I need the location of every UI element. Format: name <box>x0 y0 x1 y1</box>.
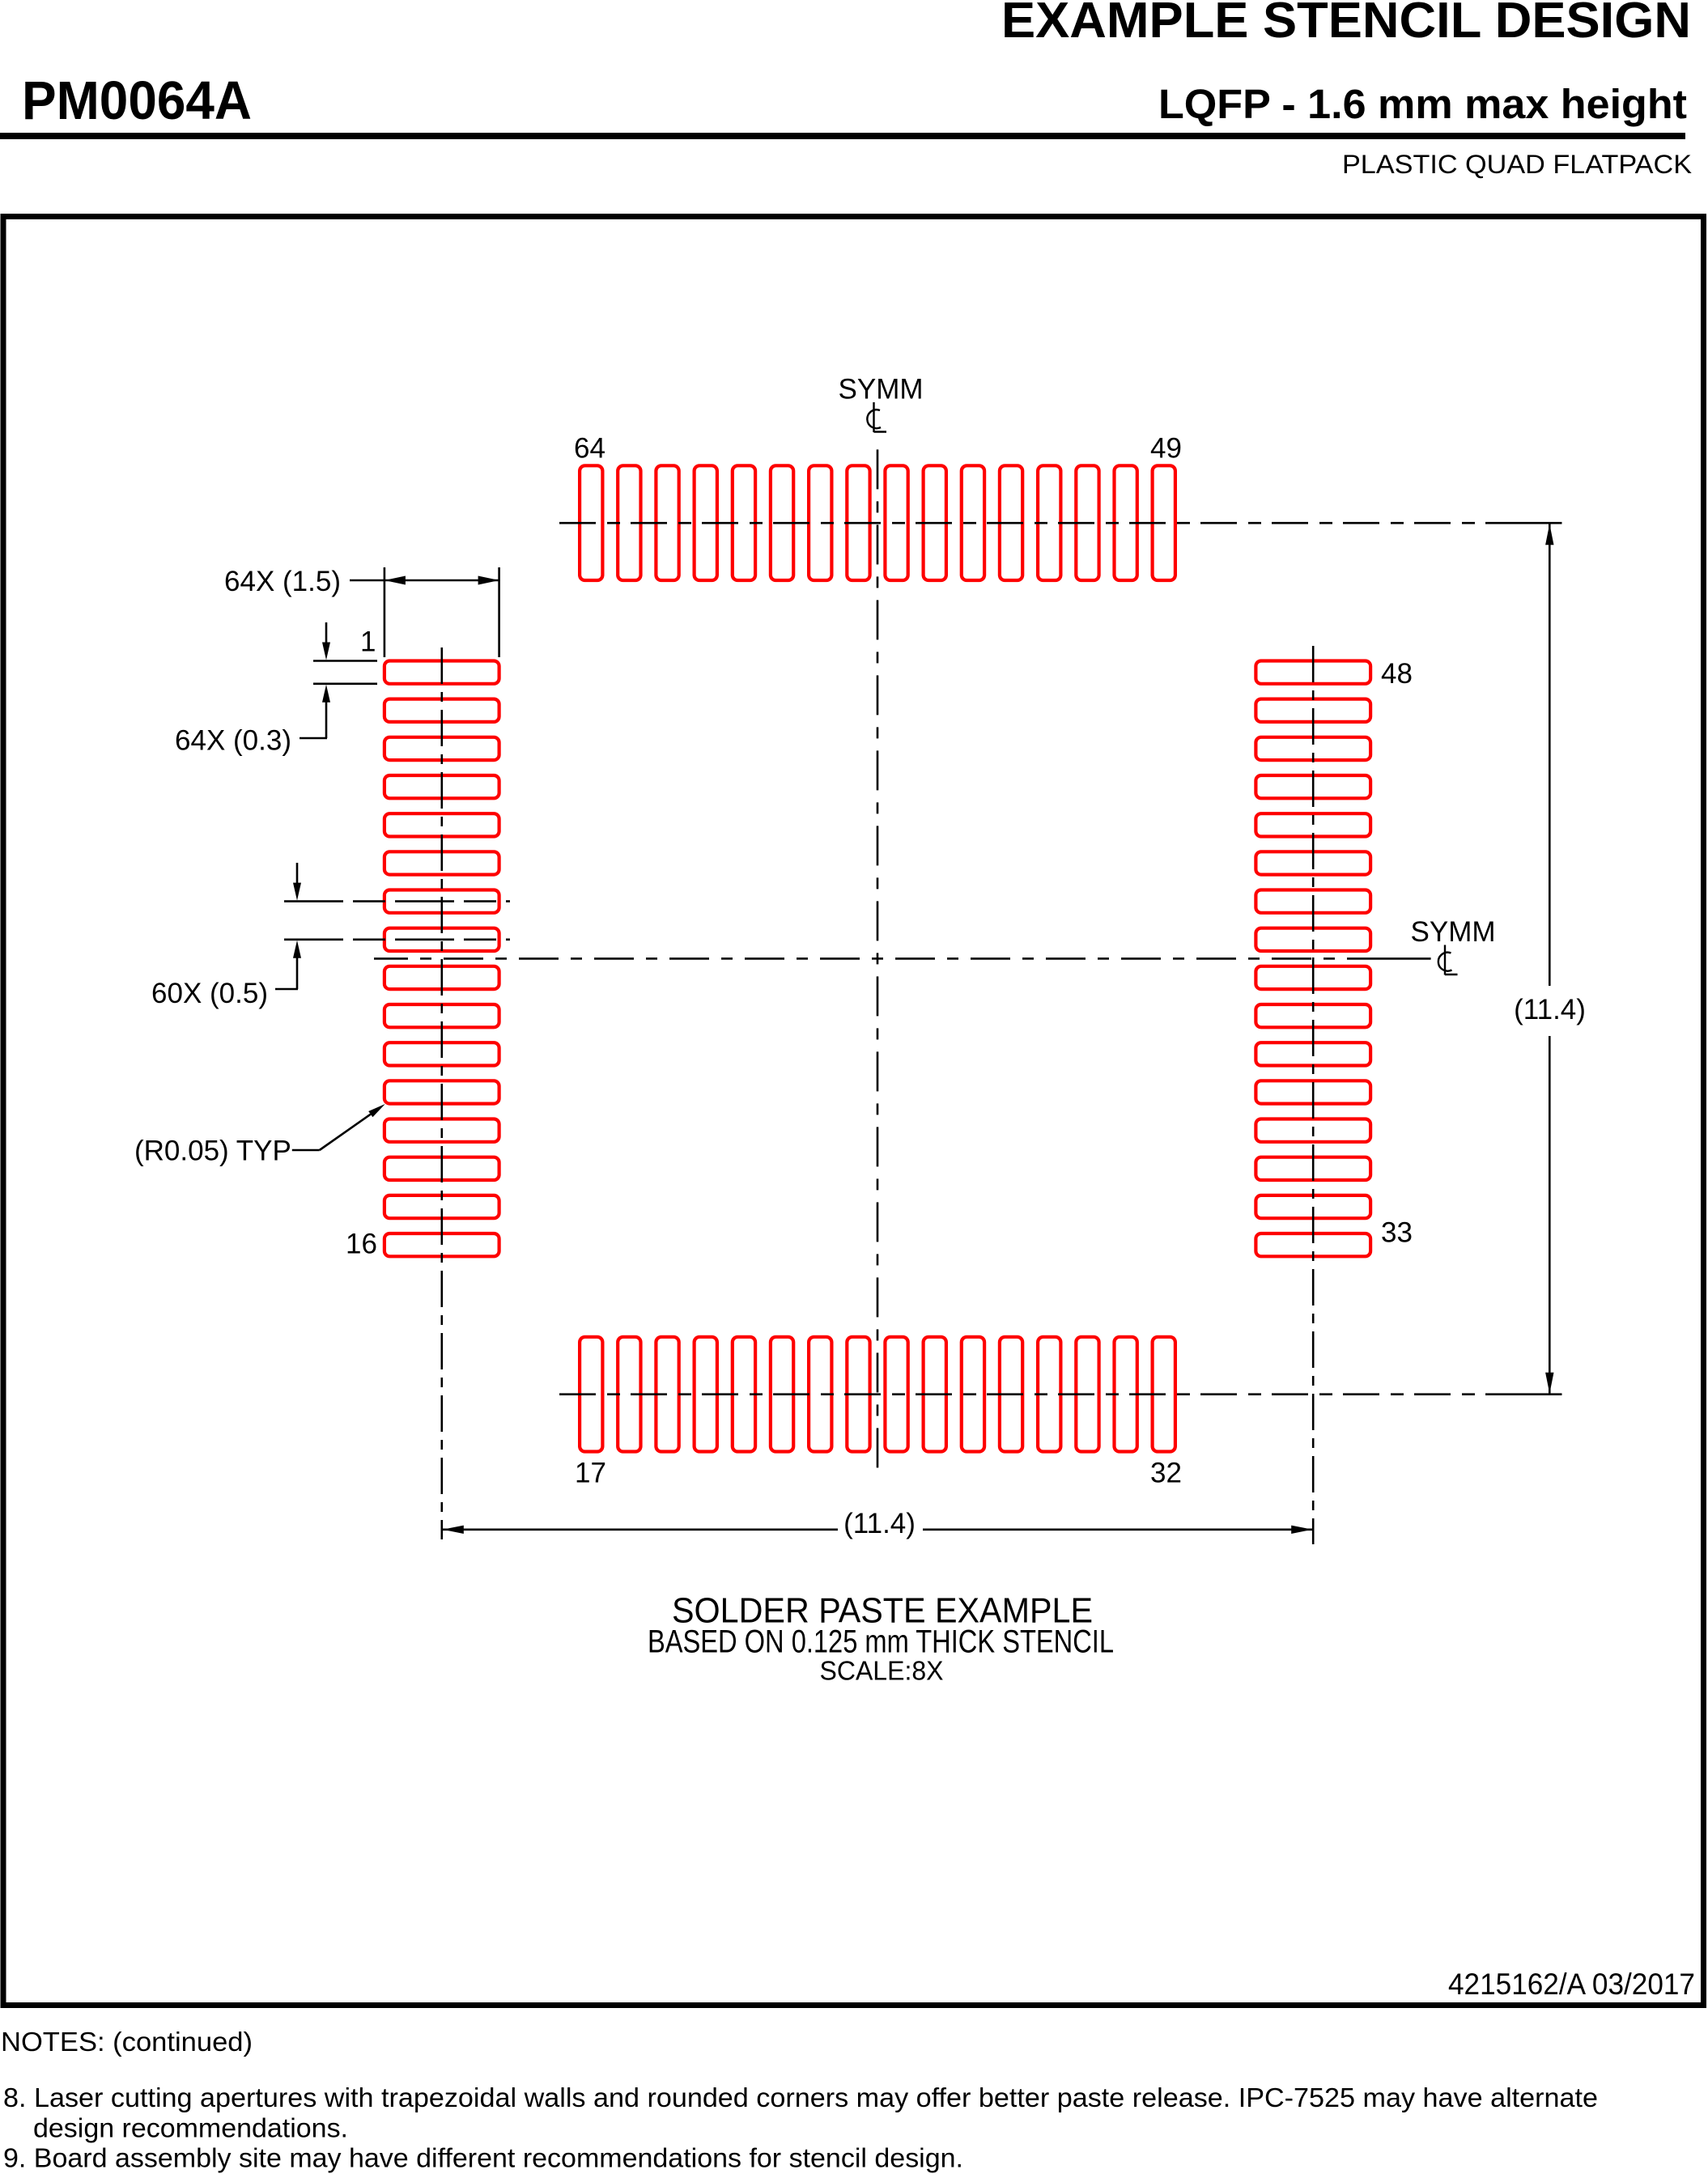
svg-text:SYMM: SYMM <box>839 374 924 405</box>
svg-text:64X (1.5): 64X (1.5) <box>224 566 341 597</box>
svg-text:PM0064A: PM0064A <box>22 70 252 131</box>
svg-text:16: 16 <box>346 1229 377 1260</box>
svg-text:SYMM: SYMM <box>1411 916 1496 948</box>
svg-text:9. Board assembly site may hav: 9. Board assembly site may have differen… <box>3 2143 963 2173</box>
svg-text:design recommendations.: design recommendations. <box>33 2113 348 2143</box>
svg-text:SCALE:8X: SCALE:8X <box>820 1656 944 1686</box>
svg-text:33: 33 <box>1381 1217 1413 1249</box>
svg-text:(11.4): (11.4) <box>843 1508 916 1539</box>
svg-text:LQFP - 1.6 mm max height: LQFP - 1.6 mm max height <box>1158 81 1687 127</box>
svg-text:8. Laser cutting apertures wit: 8. Laser cutting apertures with trapezoi… <box>3 2082 1598 2112</box>
svg-text:EXAMPLE STENCIL DESIGN: EXAMPLE STENCIL DESIGN <box>1001 0 1691 49</box>
svg-text:PLASTIC QUAD FLATPACK: PLASTIC QUAD FLATPACK <box>1342 150 1692 179</box>
svg-text:1: 1 <box>360 626 376 658</box>
svg-text:4215162/A 03/2017: 4215162/A 03/2017 <box>1448 1968 1695 2001</box>
svg-text:NOTES: (continued): NOTES: (continued) <box>1 2027 253 2057</box>
svg-text:17: 17 <box>575 1458 606 1489</box>
svg-text:60X (0.5): 60X (0.5) <box>151 978 268 1009</box>
svg-text:64X (0.3): 64X (0.3) <box>175 725 291 757</box>
svg-text:(R0.05) TYP: (R0.05) TYP <box>134 1136 291 1167</box>
svg-text:64: 64 <box>574 433 605 465</box>
svg-text:48: 48 <box>1381 658 1413 690</box>
svg-text:(11.4): (11.4) <box>1514 994 1586 1025</box>
svg-text:32: 32 <box>1150 1458 1182 1489</box>
svg-text:49: 49 <box>1150 433 1182 465</box>
svg-text:BASED ON 0.125 mm THICK STENCI: BASED ON 0.125 mm THICK STENCIL <box>648 1624 1114 1659</box>
